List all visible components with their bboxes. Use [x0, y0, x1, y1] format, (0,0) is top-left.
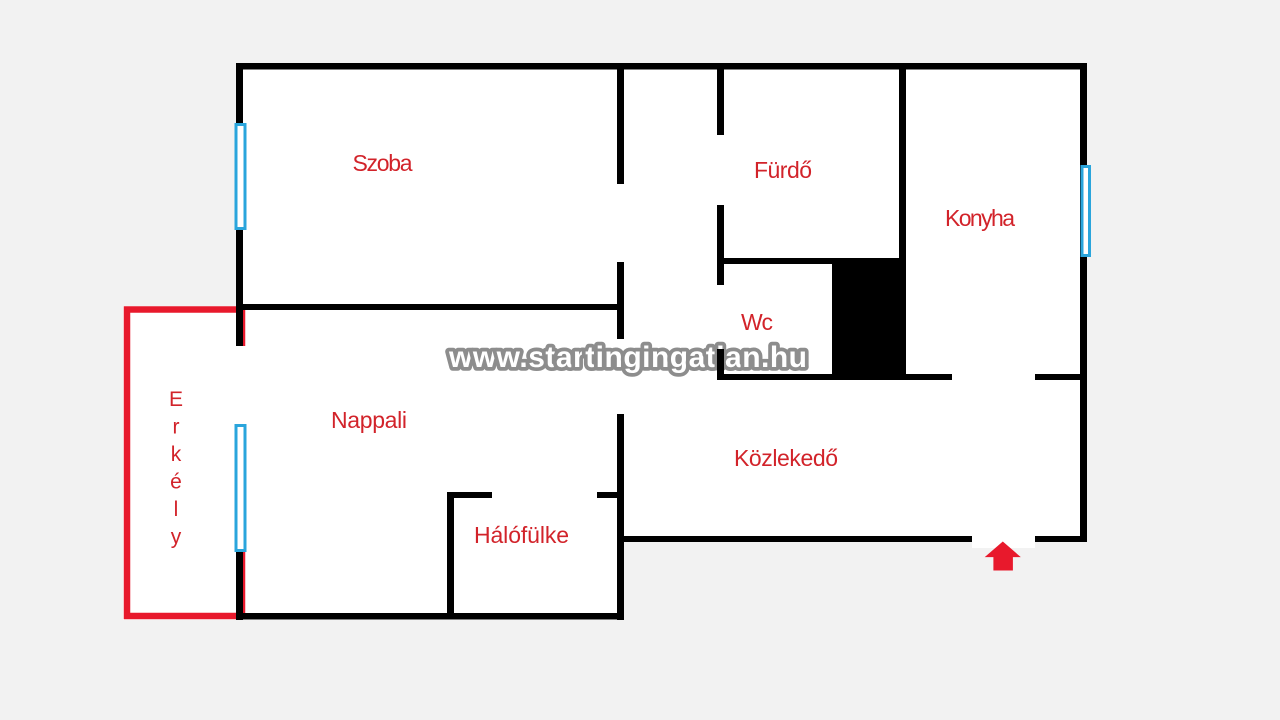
- svg-text:Nappali: Nappali: [331, 407, 407, 433]
- svg-text:Fürdő: Fürdő: [754, 157, 812, 183]
- svg-text:Szoba: Szoba: [353, 150, 413, 176]
- svg-text:Hálófülke: Hálófülke: [474, 522, 569, 548]
- svg-text:k: k: [171, 443, 182, 466]
- svg-text:l: l: [174, 498, 179, 521]
- svg-text:r: r: [173, 416, 180, 439]
- svg-text:Wc: Wc: [741, 309, 773, 335]
- svg-text:www.startingingatlan.hu: www.startingingatlan.hu: [448, 341, 807, 374]
- svg-text:Konyha: Konyha: [945, 205, 1015, 231]
- svg-text:y: y: [171, 526, 182, 549]
- svg-text:E: E: [169, 388, 183, 411]
- svg-text:Közlekedő: Közlekedő: [734, 445, 838, 471]
- svg-text:é: é: [170, 471, 182, 494]
